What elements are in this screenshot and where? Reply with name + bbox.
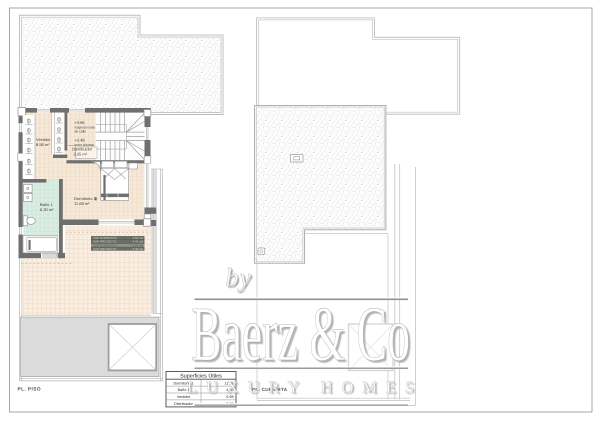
svg-text:by: by xyxy=(226,263,253,292)
svg-text:11.68 m²: 11.68 m² xyxy=(74,201,90,206)
svg-text:Distribuidor: Distribuidor xyxy=(174,402,193,406)
svg-text:de calle: de calle xyxy=(75,130,87,134)
svg-text:6.30 m²: 6.30 m² xyxy=(40,207,54,212)
svg-text:Baerz & Co: Baerz & Co xyxy=(191,290,410,377)
svg-text:PL. PISO: PL. PISO xyxy=(18,387,41,393)
svg-text:SUP. PROYECTO: SUP. PROYECTO xyxy=(93,247,117,251)
svg-text:8.58 m²: 8.58 m² xyxy=(36,142,50,147)
svg-text:3.35 m2: 3.35 m2 xyxy=(133,247,144,251)
svg-text:+3.48: +3.48 xyxy=(75,137,86,142)
svg-text:+3.96: +3.96 xyxy=(75,120,86,125)
svg-text:LUXURY HOMES: LUXURY HOMES xyxy=(187,378,423,397)
svg-text:3.35 m²: 3.35 m² xyxy=(74,152,88,157)
